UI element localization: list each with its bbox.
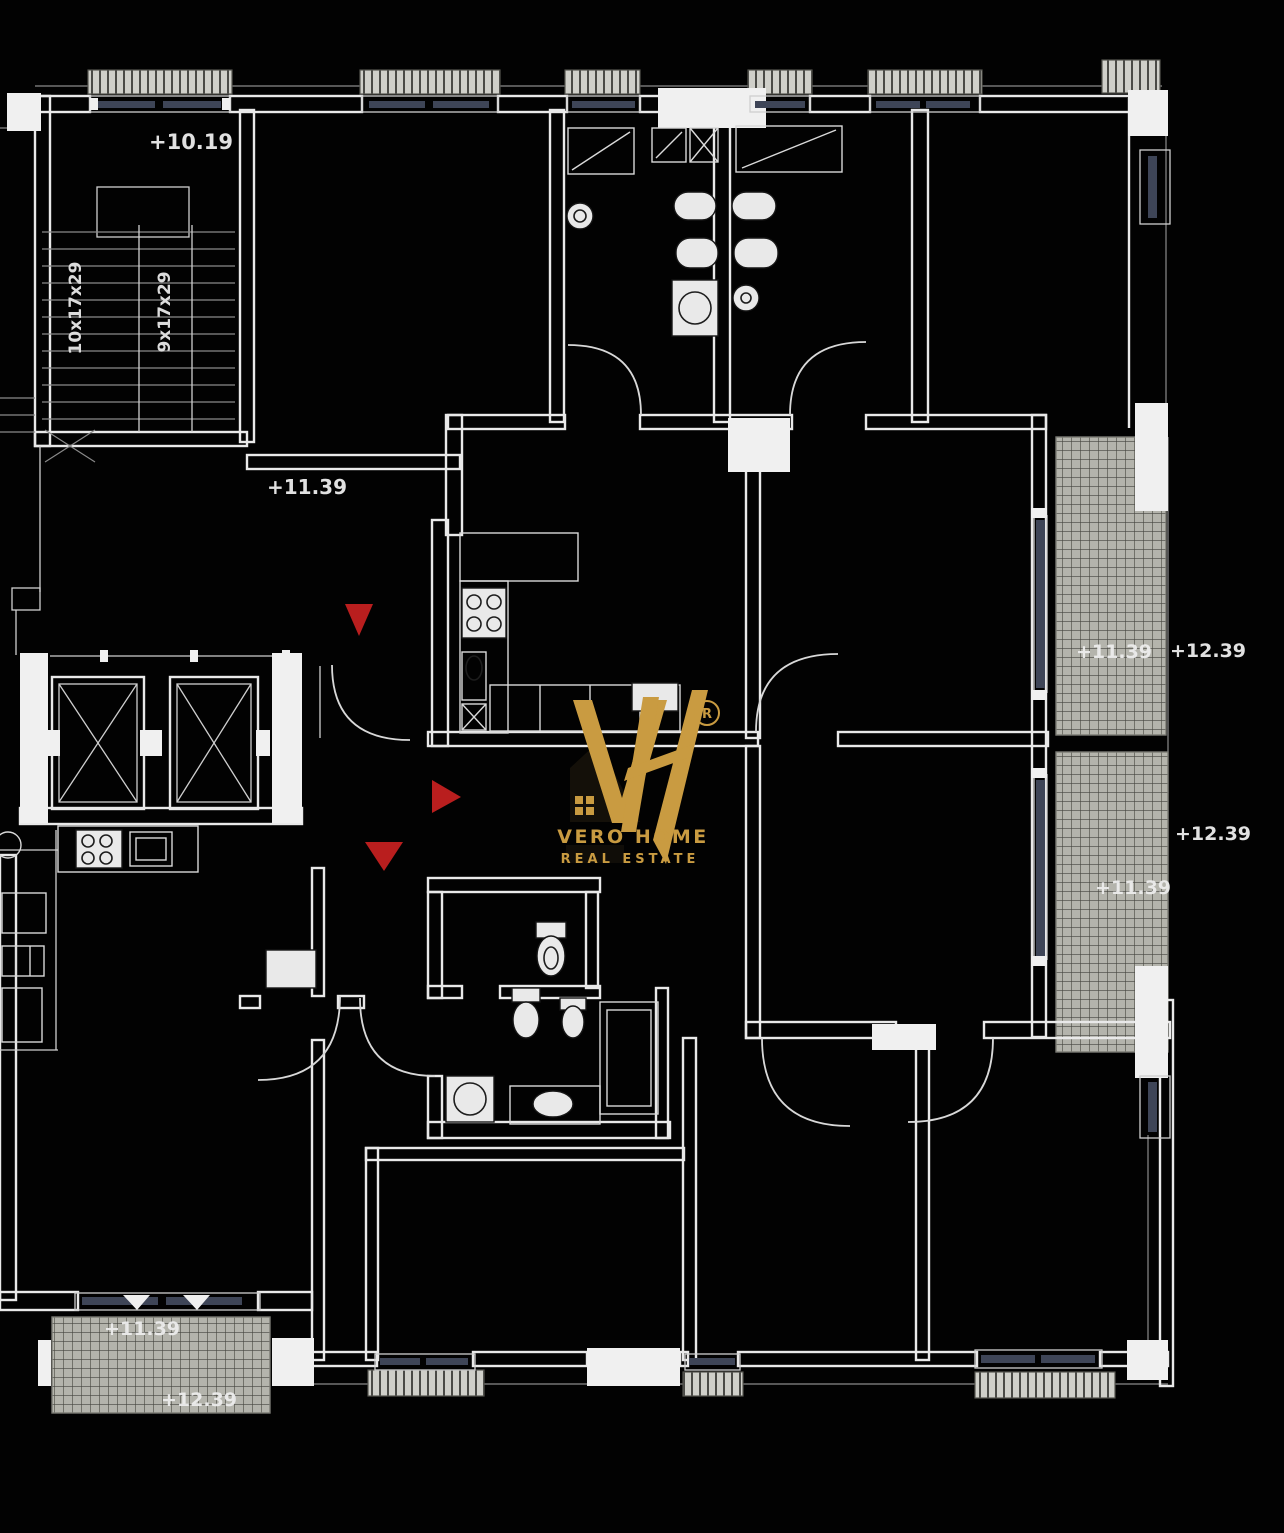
elevation-label: +11.39 (1095, 877, 1171, 899)
vero-home-logo: R VERO HOME REAL ESTATE (557, 690, 719, 867)
balcony-hatches (52, 437, 1168, 1413)
stair-dimension-label: 9x17x29 (155, 271, 175, 352)
stair-dimension-label: 10x17x29 (66, 262, 86, 355)
elevation-label: +12.39 (1170, 640, 1246, 662)
bidet (562, 1006, 584, 1038)
floor-plan-svg: +10.19+11.39+11.39+12.39+12.39+11.39+11.… (0, 0, 1284, 1533)
bathroom-center (446, 922, 658, 1124)
toilet (732, 192, 776, 220)
fixtures (0, 126, 842, 1124)
logo-window-pane (575, 796, 583, 804)
elevation-label: +11.39 (267, 475, 347, 499)
elevation-label: +11.39 (104, 1318, 180, 1340)
elevators (46, 650, 290, 809)
logo-name: VERO HOME (557, 826, 709, 848)
bidet (734, 238, 778, 268)
elevation-label: +12.39 (161, 1389, 237, 1411)
elevation-label: +12.39 (1175, 823, 1251, 845)
door-arcs (258, 342, 993, 1126)
toilet (537, 936, 565, 976)
radiator-hatches (88, 60, 1160, 1398)
elevation-label: +11.39 (1076, 641, 1152, 663)
marker-triangle-down (365, 842, 403, 871)
stove (462, 588, 506, 638)
fridge (266, 950, 316, 988)
guide-lines (0, 86, 1168, 1384)
bathrooms-top (567, 126, 842, 336)
toilet (674, 192, 716, 220)
sink (567, 203, 593, 229)
logo-window-pane (575, 807, 583, 815)
logo-window-pane (586, 796, 594, 804)
sink (533, 1091, 573, 1117)
red-markers (345, 604, 461, 871)
shower (600, 1002, 658, 1114)
kitchen-left (0, 826, 316, 1042)
logo-tagline: REAL ESTATE (561, 852, 700, 867)
registered-mark: R (702, 707, 712, 722)
marker-triangle-right (432, 780, 461, 813)
elevation-label: +10.19 (149, 130, 233, 154)
sink (462, 652, 486, 700)
marker-triangle-down (345, 604, 373, 636)
toilet (513, 1002, 539, 1038)
sink (733, 285, 759, 311)
logo-window-pane (586, 807, 594, 815)
floor-plan-page: +10.19+11.39+11.39+12.39+12.39+11.39+11.… (0, 0, 1284, 1533)
stair-labels: 10x17x299x17x29 (66, 262, 175, 355)
bidet (676, 238, 718, 268)
